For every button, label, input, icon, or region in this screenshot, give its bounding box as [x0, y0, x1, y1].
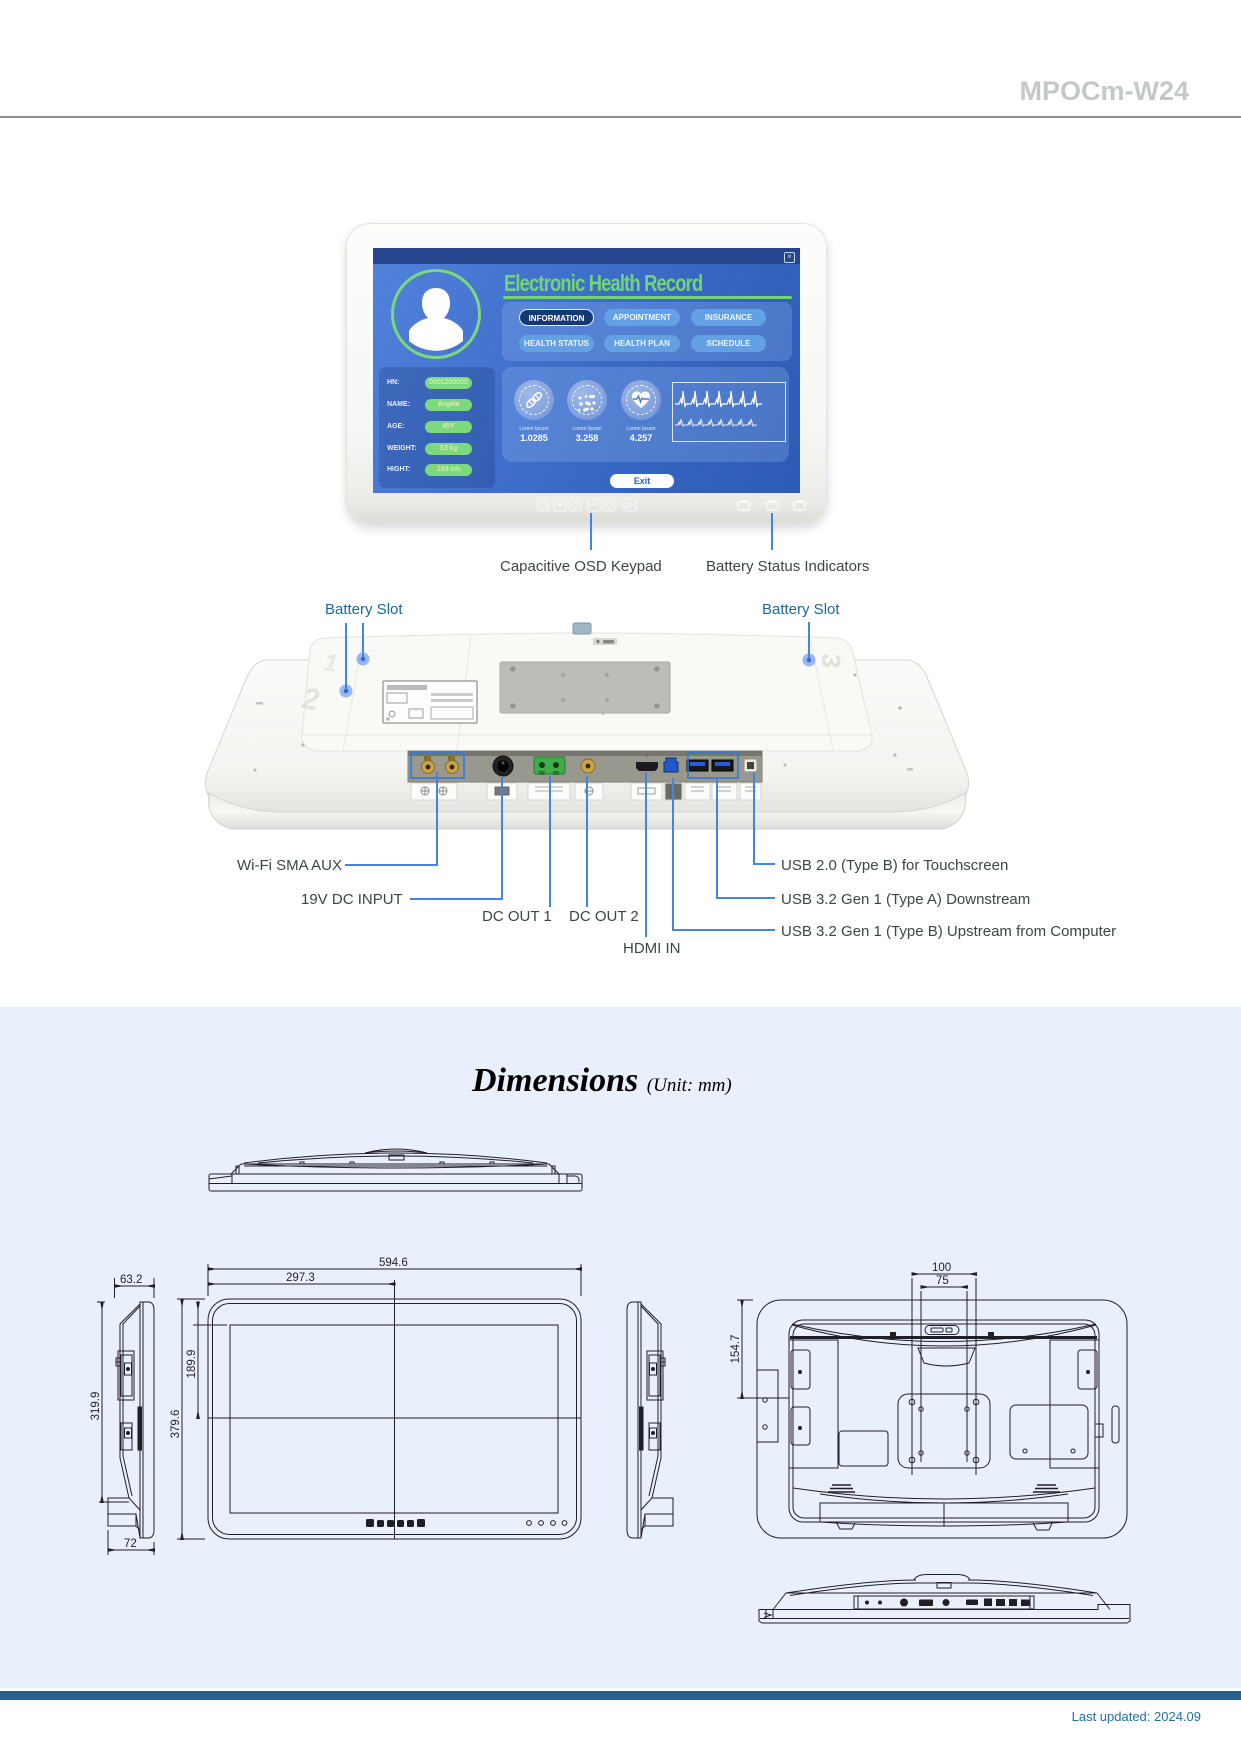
svg-text:319.9: 319.9: [90, 1392, 102, 1421]
svg-text:72: 72: [124, 1538, 137, 1550]
svg-text:379.6: 379.6: [170, 1410, 182, 1439]
svg-text:297.3: 297.3: [286, 1272, 315, 1284]
svg-text:75: 75: [936, 1275, 949, 1287]
svg-text:594.6: 594.6: [379, 1257, 408, 1269]
svg-text:100: 100: [932, 1262, 951, 1274]
svg-text:63.2: 63.2: [120, 1274, 142, 1286]
svg-text:189.9: 189.9: [186, 1350, 198, 1379]
svg-text:3: 3: [816, 652, 847, 669]
svg-text:154.7: 154.7: [730, 1335, 742, 1364]
